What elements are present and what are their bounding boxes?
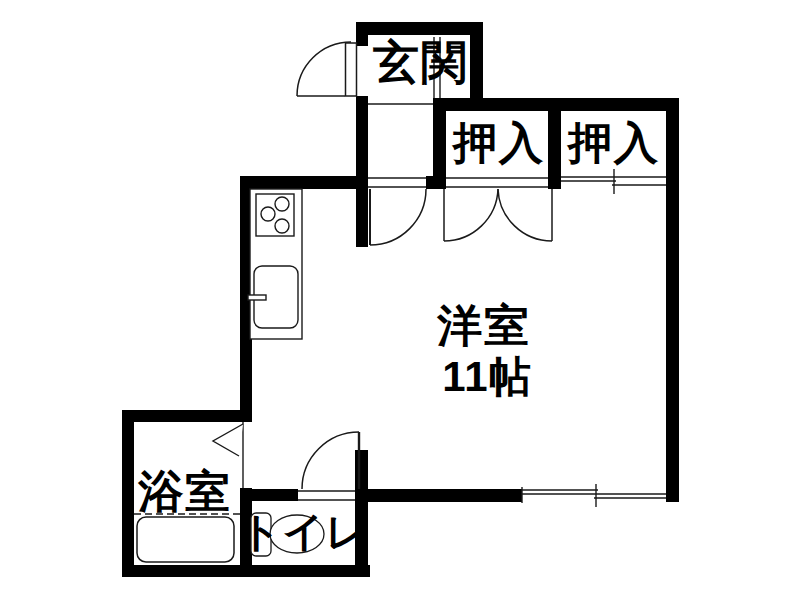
wall-genkan-left-upper: [356, 22, 368, 46]
entrance-door-leaf: [346, 43, 357, 96]
closet-door-swing-right: [498, 189, 552, 241]
label-closet-left: 押入: [453, 121, 545, 165]
label-main-room-size: 11帖: [442, 356, 531, 398]
window-rails: [522, 490, 666, 498]
wall-kitchen-top: [240, 176, 368, 189]
bathtub-icon: [137, 517, 234, 562]
south-window-icon: [522, 484, 666, 507]
entrance-door-swing: [297, 42, 351, 96]
wall-bath-top: [122, 410, 252, 422]
stove-burners-icon: [256, 194, 294, 236]
wall-bath-left: [122, 410, 134, 577]
label-bathroom: 浴室: [138, 469, 232, 514]
opening-toilet-door: [298, 491, 355, 500]
wall-stub-top: [426, 176, 446, 189]
kitchen-unit: [248, 189, 302, 339]
wall-closet-left: [433, 98, 446, 189]
wall-genkan-left-lower: [356, 96, 368, 247]
floorplan-canvas: 玄関 押入 押入 洋室 11帖 浴室 トイレ: [0, 0, 800, 600]
wall-right-outer: [666, 98, 679, 502]
label-genkan: 玄関: [373, 39, 469, 85]
toilet-door-swing: [302, 432, 359, 489]
wall-genkan-right: [470, 22, 483, 111]
wall-mainroom-bottom: [365, 489, 522, 502]
opening-corridor-door: [368, 178, 426, 187]
mainroom-door-icon: [370, 189, 426, 245]
bath-door-panel: [213, 424, 243, 456]
wall-closet-divider: [548, 111, 561, 189]
wall-genkan-top: [356, 22, 483, 35]
label-toilet: トイレ: [240, 512, 369, 553]
burner: [275, 219, 289, 233]
burner: [275, 197, 289, 211]
burner: [261, 207, 275, 221]
toilet-door-icon: [302, 432, 359, 489]
label-closet-right: 押入: [568, 121, 660, 165]
closet-door-swing-left: [444, 189, 498, 241]
closet-left-double-door-icon: [444, 189, 552, 241]
closet-right-sliding-door-icon: [561, 169, 666, 194]
label-main-room: 洋室: [437, 303, 531, 348]
wall-toilet-top: [252, 489, 298, 501]
mainroom-door-swing: [370, 189, 426, 245]
entrance-door-icon: [297, 42, 357, 96]
sink-faucet: [248, 295, 266, 300]
kitchen-sink-icon: [248, 266, 298, 328]
opening-closet-left: [446, 178, 548, 187]
bathroom-fixtures: [134, 514, 240, 562]
floorplan-drawing: [0, 0, 800, 600]
wall-closet-top: [433, 98, 679, 111]
